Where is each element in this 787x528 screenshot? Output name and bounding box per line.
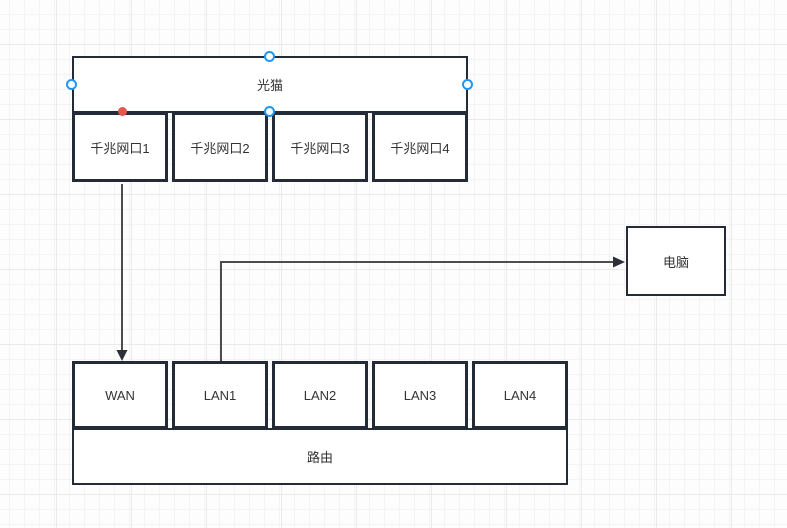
modem-port-3[interactable]: 千兆网口3	[272, 112, 368, 182]
computer-label: 电脑	[663, 252, 689, 271]
router-port-lan1[interactable]: LAN1	[172, 361, 268, 429]
port-label: LAN1	[204, 388, 237, 403]
modem-port-2[interactable]: 千兆网口2	[172, 112, 268, 182]
port-label: LAN4	[504, 388, 537, 403]
router-port-lan4[interactable]: LAN4	[472, 361, 568, 429]
selection-handle-top[interactable]	[264, 51, 275, 62]
port-label: WAN	[105, 388, 135, 403]
modem-port-1[interactable]: 千兆网口1	[72, 112, 168, 182]
modem-port-row: 千兆网口1 千兆网口2 千兆网口3 千兆网口4	[72, 112, 468, 182]
router-port-wan[interactable]: WAN	[72, 361, 168, 429]
selection-handle-left[interactable]	[66, 79, 77, 90]
computer-shape[interactable]: 电脑	[626, 226, 726, 296]
arrowhead-down-icon	[117, 350, 128, 361]
port-label: LAN3	[404, 388, 437, 403]
port-label: 千兆网口2	[190, 138, 249, 157]
selection-handle-bottom[interactable]	[264, 106, 275, 117]
modem-shape[interactable]: 光猫	[72, 56, 468, 113]
router-port-row: WAN LAN1 LAN2 LAN3 LAN4	[72, 361, 568, 429]
router-port-lan2[interactable]: LAN2	[272, 361, 368, 429]
modem-port-4[interactable]: 千兆网口4	[372, 112, 468, 182]
router-label: 路由	[307, 447, 333, 466]
port-label: LAN2	[304, 388, 337, 403]
router-port-lan3[interactable]: LAN3	[372, 361, 468, 429]
modem-label: 光猫	[257, 75, 283, 94]
diagram-canvas[interactable]: 光猫 千兆网口1 千兆网口2 千兆网口3 千兆网口4 WAN LAN1 LAN2…	[0, 0, 787, 528]
port-label: 千兆网口3	[290, 138, 349, 157]
arrowhead-right-icon	[613, 257, 625, 268]
connector-lan1-to-computer[interactable]	[221, 257, 625, 362]
selection-handle-right[interactable]	[462, 79, 473, 90]
connector-modem-port1-to-wan[interactable]	[117, 184, 128, 361]
port-label: 千兆网口4	[390, 138, 449, 157]
port-label: 千兆网口1	[90, 138, 149, 157]
router-shape[interactable]: 路由	[72, 428, 568, 485]
connection-endpoint-dot[interactable]	[118, 107, 127, 116]
